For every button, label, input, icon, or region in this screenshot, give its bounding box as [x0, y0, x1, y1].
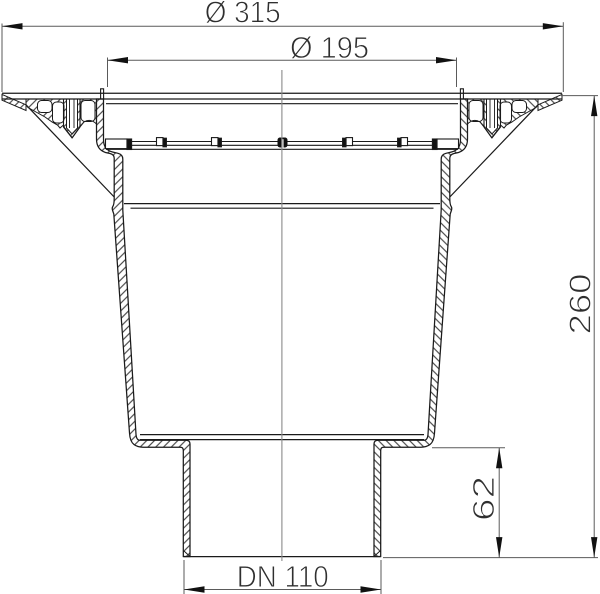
svg-text:260: 260 [563, 274, 598, 335]
svg-text:Ø 195: Ø 195 [290, 30, 369, 65]
svg-text:DN 110: DN 110 [237, 559, 329, 594]
svg-text:Ø 315: Ø 315 [205, 0, 281, 30]
svg-text:62: 62 [466, 476, 501, 521]
